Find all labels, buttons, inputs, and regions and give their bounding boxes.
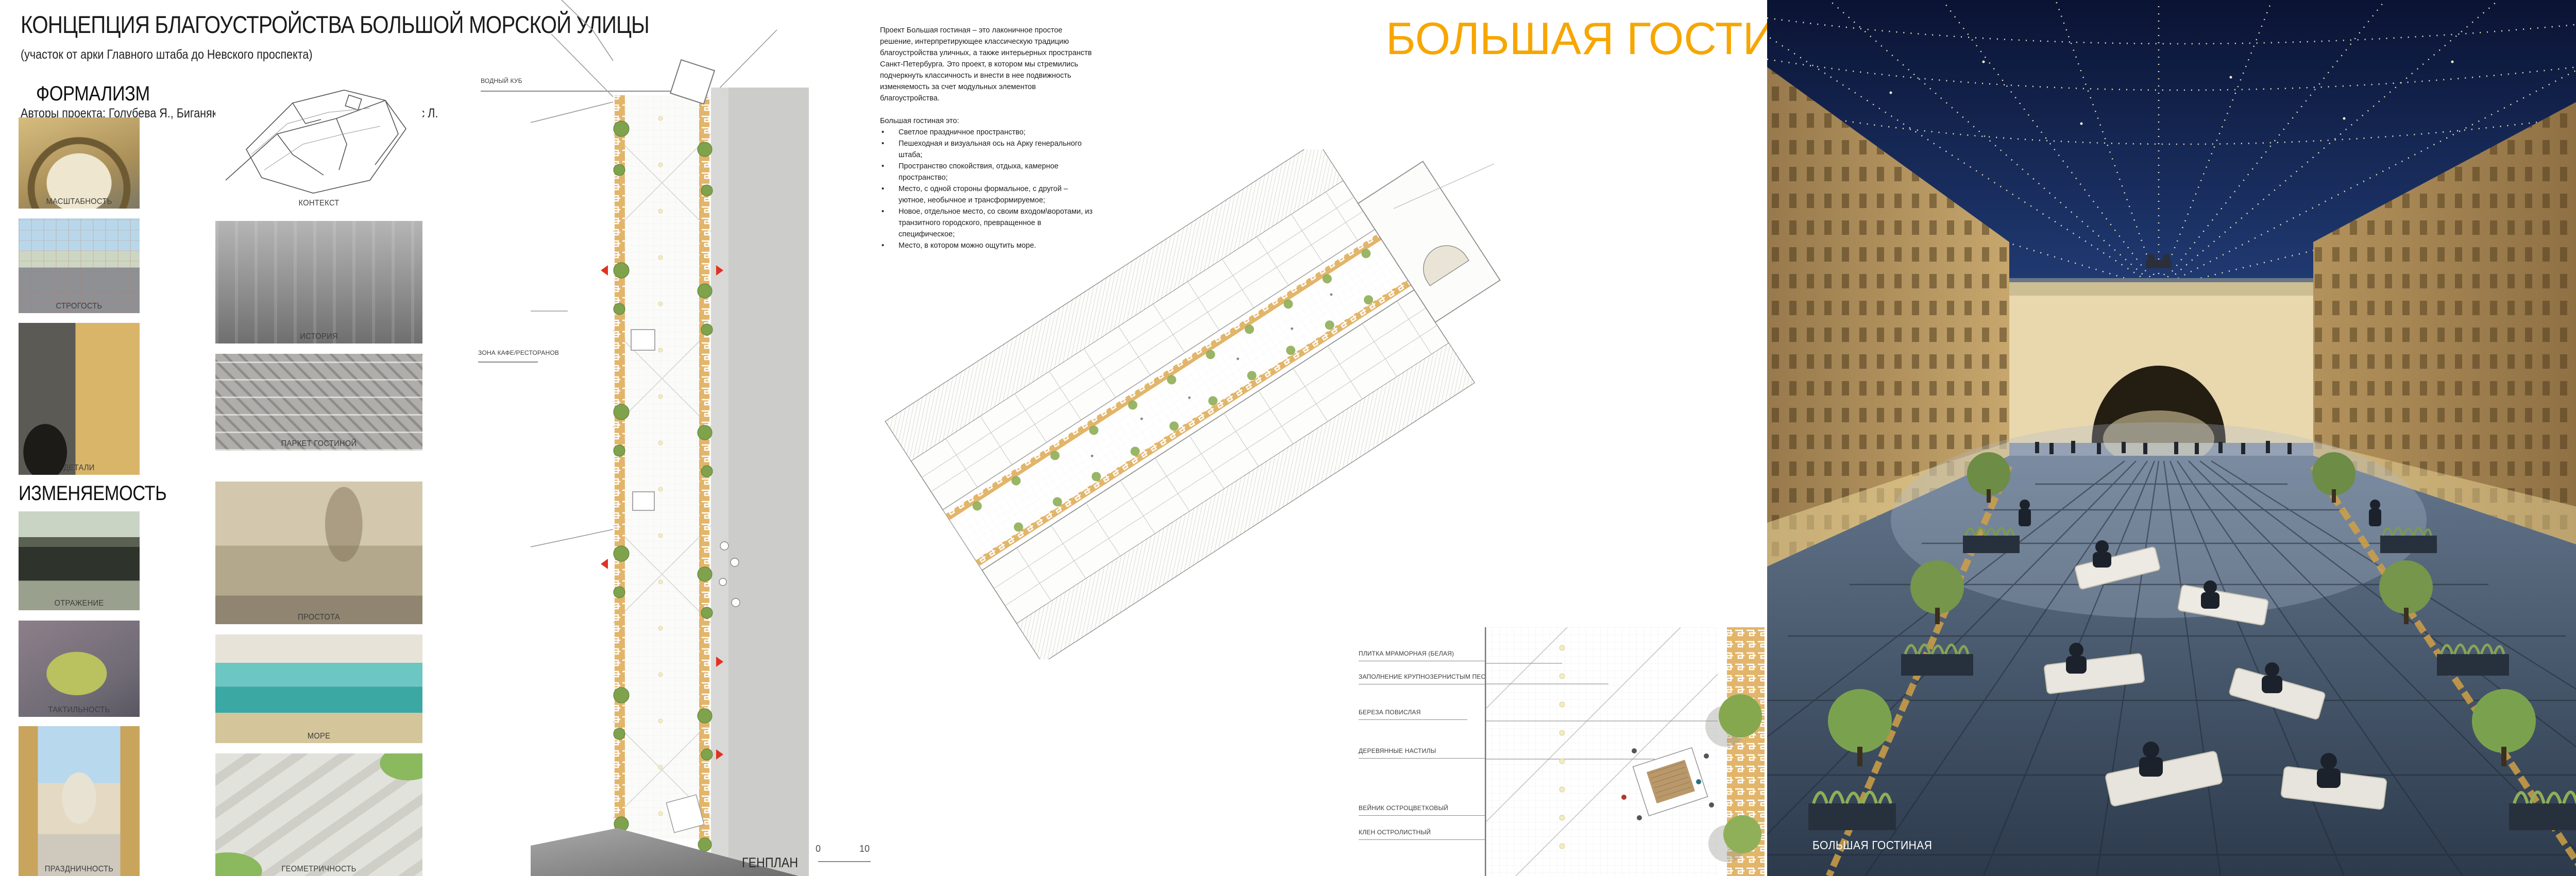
reference-caption: КОНТЕКСТ bbox=[224, 199, 414, 208]
reference-caption: ГЕОМЕТРИЧНОСТЬ bbox=[224, 865, 414, 874]
facade-details-photo-placeholder bbox=[19, 323, 140, 475]
reference-caption: ИСТОРИЯ bbox=[224, 332, 414, 341]
reference-image-geometry: ГЕОМЕТРИЧНОСТЬ bbox=[215, 753, 422, 876]
reference-caption: ПАРКЕТ ГОСТИНОЙ bbox=[224, 439, 414, 449]
reference-image-tactility: ТАКТИЛЬНОСТЬ bbox=[19, 621, 140, 717]
section-heading-changeability: ИЗМЕНЯЕМОСТЬ bbox=[19, 482, 191, 505]
reference-image-context: КОНТЕКСТ bbox=[215, 72, 422, 210]
reference-image-scale: МАСШТАБНОСТЬ bbox=[19, 117, 140, 209]
legend-item-maple: КЛЕН ОСТРОЛИСТНЫЙ bbox=[1359, 829, 1485, 840]
reference-image-history: ИСТОРИЯ bbox=[215, 221, 422, 343]
description-bullet: Светлое праздничное пространство; bbox=[880, 127, 1096, 138]
reference-image-sea: МОРЕ bbox=[215, 634, 422, 743]
reference-image-strictness: СТРОГОСТЬ bbox=[19, 218, 140, 313]
render-main-label: БОЛЬШАЯ ГОСТИНАЯ bbox=[1812, 838, 1932, 852]
reflecting-pool-photo-placeholder bbox=[19, 511, 140, 610]
legend-item-wood-decks: ДЕРЕВЯННЫЕ НАСТИЛЫ bbox=[1359, 747, 1493, 759]
reference-caption: СТРОГОСТЬ bbox=[23, 302, 134, 311]
reference-caption: ТАКТИЛЬНОСТЬ bbox=[23, 706, 134, 715]
parterre-photo-placeholder bbox=[19, 621, 140, 717]
axonometric-svg bbox=[876, 149, 1525, 659]
axonometric-drawing bbox=[876, 149, 1525, 659]
historic-photo-placeholder bbox=[215, 221, 422, 343]
masterplan-callout-water-cube: ВОДНЫЙ КУБ bbox=[481, 77, 522, 84]
context-sketch-placeholder bbox=[215, 72, 422, 210]
callout-leader-line bbox=[478, 362, 538, 363]
legend-item-birch: БЕРЕЗА ПОВИСЛАЯ bbox=[1359, 709, 1467, 720]
main-render-illustration bbox=[1767, 0, 2576, 876]
reference-image-festivity: ПРАЗДНИЧНОСТЬ bbox=[19, 726, 140, 876]
reference-caption: МОРЕ bbox=[224, 732, 414, 741]
cubes-fountain-photo-placeholder bbox=[215, 753, 422, 876]
festive-street-photo-placeholder bbox=[19, 726, 140, 876]
scale-bar-start: 0 bbox=[816, 844, 821, 854]
context-sketch-drawing bbox=[215, 72, 422, 210]
arch-photo-placeholder bbox=[19, 117, 140, 209]
description-paragraph: Проект Большая гостиная – это лаконичное… bbox=[880, 25, 1096, 104]
parquet-photo-placeholder bbox=[215, 354, 422, 451]
reference-caption: ПРОСТОТА bbox=[224, 613, 414, 622]
reference-caption: МАСШТАБНОСТЬ bbox=[23, 197, 134, 207]
reference-caption: ПРАЗДНИЧНОСТЬ bbox=[23, 865, 134, 874]
reference-caption: ОТРАЖЕНИЕ bbox=[23, 599, 134, 608]
page-subtitle: (участок от арки Главного штаба до Невск… bbox=[21, 47, 360, 62]
fragment-plan-svg bbox=[1485, 627, 1765, 876]
masterplan-drawing bbox=[531, 0, 809, 876]
legend-item-reed-grass: ВЕЙНИК ОСТРОЦВЕТКОВЫЙ bbox=[1359, 804, 1497, 816]
section-heading-formalism: ФОРМАЛИЗМ bbox=[36, 82, 168, 106]
reference-image-parquet: ПАРКЕТ ГОСТИНОЙ bbox=[215, 354, 422, 451]
reference-image-reflection: ОТРАЖЕНИЕ bbox=[19, 511, 140, 610]
description-list-intro: Большая гостиная это: bbox=[880, 115, 1096, 127]
fragment-plan bbox=[1485, 627, 1765, 876]
palace-square-photo-placeholder bbox=[19, 218, 140, 313]
scale-bar-end: 10 bbox=[859, 844, 870, 854]
masterplan-plan-svg bbox=[531, 0, 809, 876]
reference-caption: ДЕТАЛИ bbox=[23, 463, 134, 473]
scale-bar-line bbox=[818, 861, 871, 862]
presentation-board: КОНЦЕПЦИЯ БЛАГОУСТРОЙСТВА БОЛЬШОЙ МОРСКО… bbox=[0, 0, 2576, 876]
reference-image-simplicity: ПРОСТОТА bbox=[215, 482, 422, 624]
reference-image-details: ДЕТАЛИ bbox=[19, 323, 140, 475]
sea-photo-placeholder bbox=[215, 634, 422, 743]
sepia-photo-placeholder bbox=[215, 482, 422, 624]
masterplan-label: ГЕНПЛАН bbox=[742, 855, 807, 871]
render-main-big-living-room: БОЛЬШАЯ ГОСТИНАЯ bbox=[1767, 0, 2576, 876]
